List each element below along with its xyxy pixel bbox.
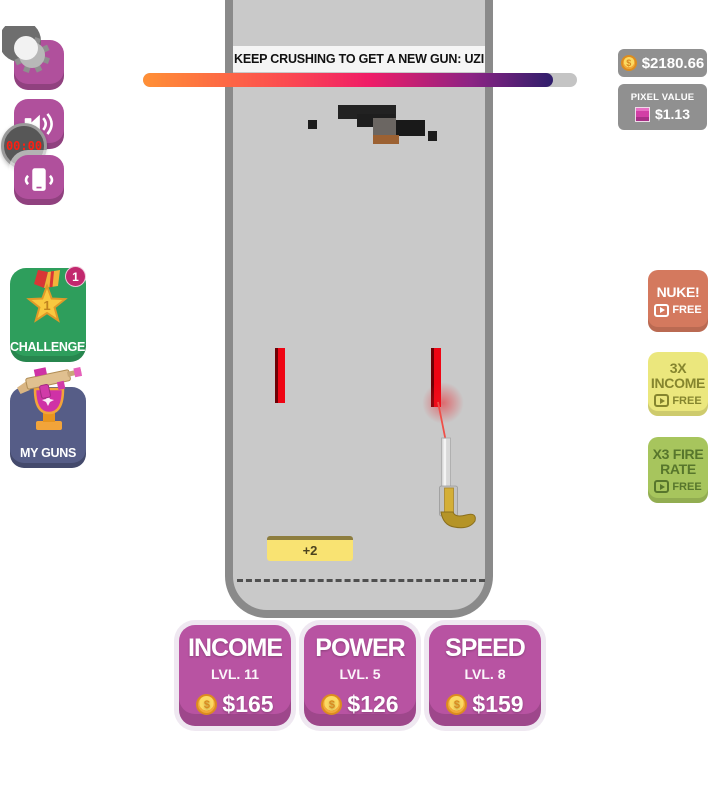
pixel-value-amount: $1.13 xyxy=(655,106,690,122)
vibrate-phone-icon xyxy=(18,159,60,201)
floor-dashed-line xyxy=(237,579,485,582)
power-price: $126 xyxy=(347,691,398,718)
speed-title: SPEED xyxy=(445,634,525,663)
crusher-bar-left xyxy=(275,348,285,403)
my-guns-button[interactable]: MY GUNS xyxy=(10,387,86,468)
income-3x-booster-button[interactable]: 3X INCOME FREE xyxy=(648,352,708,416)
income-3x-title: 3X INCOME xyxy=(650,361,706,390)
speed-price: $159 xyxy=(472,691,523,718)
shotgun-icon[interactable] xyxy=(428,398,480,530)
challenges-button[interactable]: 1 1 CHALLENGES xyxy=(10,268,86,362)
play-ad-icon xyxy=(654,480,669,493)
challenges-notification-badge: 1 xyxy=(65,266,86,287)
coin-icon: $ xyxy=(196,694,217,715)
challenges-badge-count: 1 xyxy=(72,270,79,284)
nuke-booster-button[interactable]: NUKE! FREE xyxy=(648,270,708,332)
gun-progress-bar xyxy=(143,73,577,87)
debris-fragment xyxy=(308,120,317,129)
fire-rate-booster-button[interactable]: X3 FIRE RATE FREE xyxy=(648,437,708,503)
debris-fragment xyxy=(396,120,425,136)
timer-value: 00:00 xyxy=(6,139,42,153)
coin-icon: $ xyxy=(446,694,467,715)
nuke-cta: FREE xyxy=(672,304,701,316)
income-price: $165 xyxy=(222,691,273,718)
play-ad-icon xyxy=(654,394,669,407)
coin-icon: $ xyxy=(621,55,637,71)
speed-upgrade-button[interactable]: SPEED LVL. 8 $ $159 xyxy=(429,625,541,726)
fire-rate-title: X3 FIRE RATE xyxy=(650,447,706,476)
gear-icon xyxy=(2,26,58,82)
coin-symbol: $ xyxy=(626,58,631,68)
fire-rate-cta: FREE xyxy=(672,481,701,493)
play-ad-icon xyxy=(654,304,669,317)
settings-button[interactable] xyxy=(14,40,64,90)
income-3x-cta: FREE xyxy=(672,395,701,407)
coin-symbol: $ xyxy=(204,699,210,711)
debris-fragment xyxy=(428,131,437,141)
wallet-badge: $ $2180.66 xyxy=(618,49,707,77)
progress-fill xyxy=(143,73,553,87)
coin-symbol: $ xyxy=(454,699,460,711)
vibration-button[interactable] xyxy=(14,155,64,205)
income-level: LVL. 11 xyxy=(211,666,259,682)
ammo-pickup-label: +2 xyxy=(303,543,318,558)
power-level: LVL. 5 xyxy=(340,666,381,682)
income-title: INCOME xyxy=(188,634,282,663)
challenge-star-level: 1 xyxy=(43,298,50,313)
power-upgrade-button[interactable]: POWER LVL. 5 $ $126 xyxy=(304,625,416,726)
power-title: POWER xyxy=(315,634,404,663)
coin-symbol: $ xyxy=(329,699,335,711)
income-upgrade-button[interactable]: INCOME LVL. 11 $ $165 xyxy=(179,625,291,726)
guns-trophy-icon xyxy=(12,355,84,435)
ammo-pickup[interactable]: +2 xyxy=(267,536,353,561)
speed-level: LVL. 8 xyxy=(465,666,506,682)
wallet-amount: $2180.66 xyxy=(642,55,705,72)
pixel-value-badge: PIXEL VALUE $1.13 xyxy=(618,84,707,130)
debris-fragment xyxy=(373,135,399,144)
coin-icon: $ xyxy=(321,694,342,715)
pixel-swatch-icon xyxy=(635,107,650,122)
goal-banner: KEEP CRUSHING TO GET A NEW GUN: UZI xyxy=(233,46,485,72)
goal-banner-text: KEEP CRUSHING TO GET A NEW GUN: UZI xyxy=(234,52,484,66)
my-guns-label: MY GUNS xyxy=(10,446,86,468)
nuke-title: NUKE! xyxy=(657,285,700,300)
pixel-value-label: PIXEL VALUE xyxy=(631,92,695,103)
